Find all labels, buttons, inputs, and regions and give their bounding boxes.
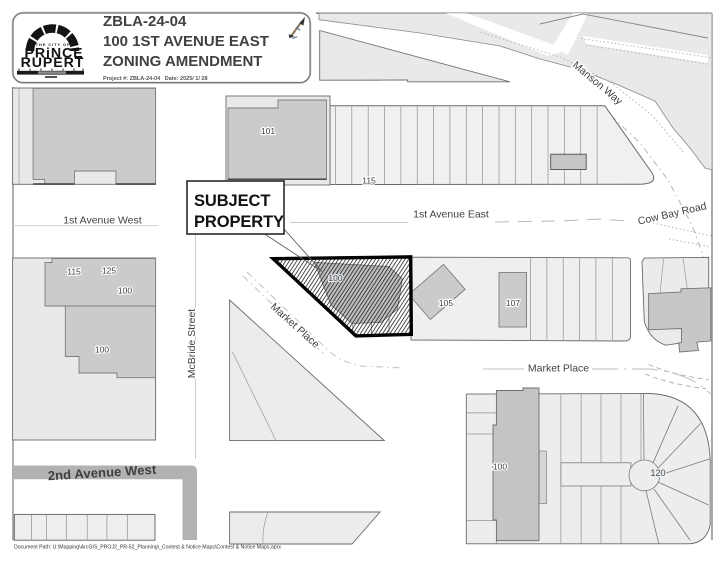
svg-text:1st Avenue West: 1st Avenue West — [63, 215, 141, 227]
svg-text:125: 125 — [102, 266, 116, 276]
svg-text:100: 100 — [328, 273, 342, 283]
svg-text:100 1ST AVENUE EAST: 100 1ST AVENUE EAST — [103, 33, 269, 50]
svg-text:100: 100 — [493, 462, 507, 472]
svg-text:100: 100 — [118, 286, 132, 296]
svg-text:McBride Street: McBride Street — [186, 309, 198, 379]
svg-text:ZBLA-24-04: ZBLA-24-04 — [103, 13, 187, 30]
svg-text:101: 101 — [261, 126, 275, 136]
svg-text:100: 100 — [95, 345, 109, 355]
svg-text:ZONING AMENDMENT: ZONING AMENDMENT — [103, 53, 262, 70]
svg-text:1st Avenue East: 1st Avenue East — [413, 209, 489, 221]
svg-text:PROPERTY: PROPERTY — [194, 213, 284, 231]
svg-text:Document Path: U:\Mapping\ArcG: Document Path: U:\Mapping\ArcGIS_PROJ2_P… — [14, 545, 281, 551]
svg-text:SUBJECT: SUBJECT — [194, 192, 270, 210]
svg-text:2nd Avenue West: 2nd Avenue West — [47, 462, 157, 484]
svg-text:120: 120 — [650, 468, 665, 478]
svg-text:Cow Bay Road: Cow Bay Road — [637, 200, 708, 227]
svg-text:115: 115 — [362, 176, 376, 186]
svg-text:Project #: ZBLA-24-04 Date:: Project #: ZBLA-24-04 Date: 2025/ 1/ 28 — [103, 76, 208, 82]
svg-text:107: 107 — [506, 298, 520, 308]
svg-text:105: 105 — [439, 298, 453, 308]
svg-text:115: 115 — [67, 267, 81, 277]
svg-text:Market Place: Market Place — [528, 363, 589, 375]
